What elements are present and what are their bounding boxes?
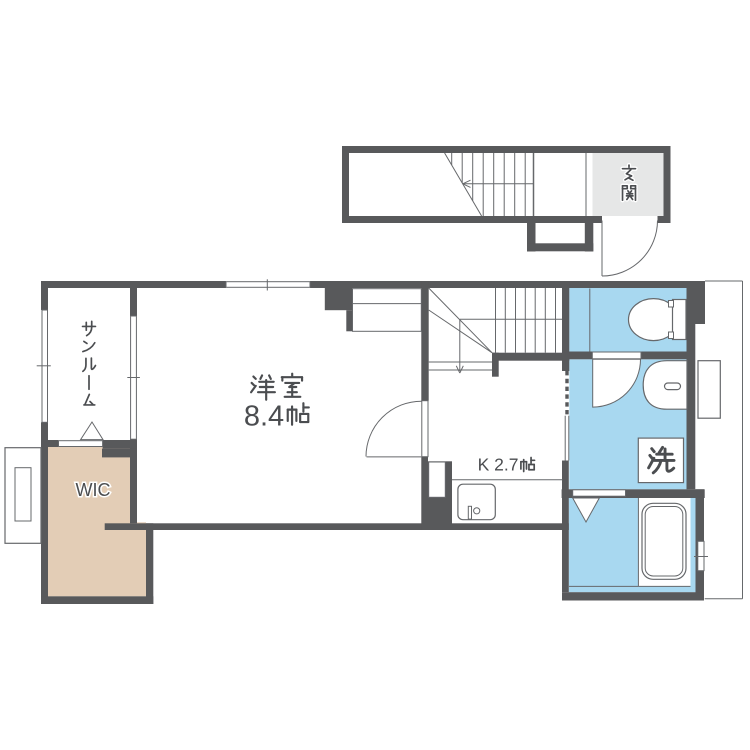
svg-text:K 2.7: K 2.7: [478, 455, 519, 475]
svg-text:8.4: 8.4: [244, 401, 284, 433]
svg-text:WIC: WIC: [76, 480, 111, 500]
